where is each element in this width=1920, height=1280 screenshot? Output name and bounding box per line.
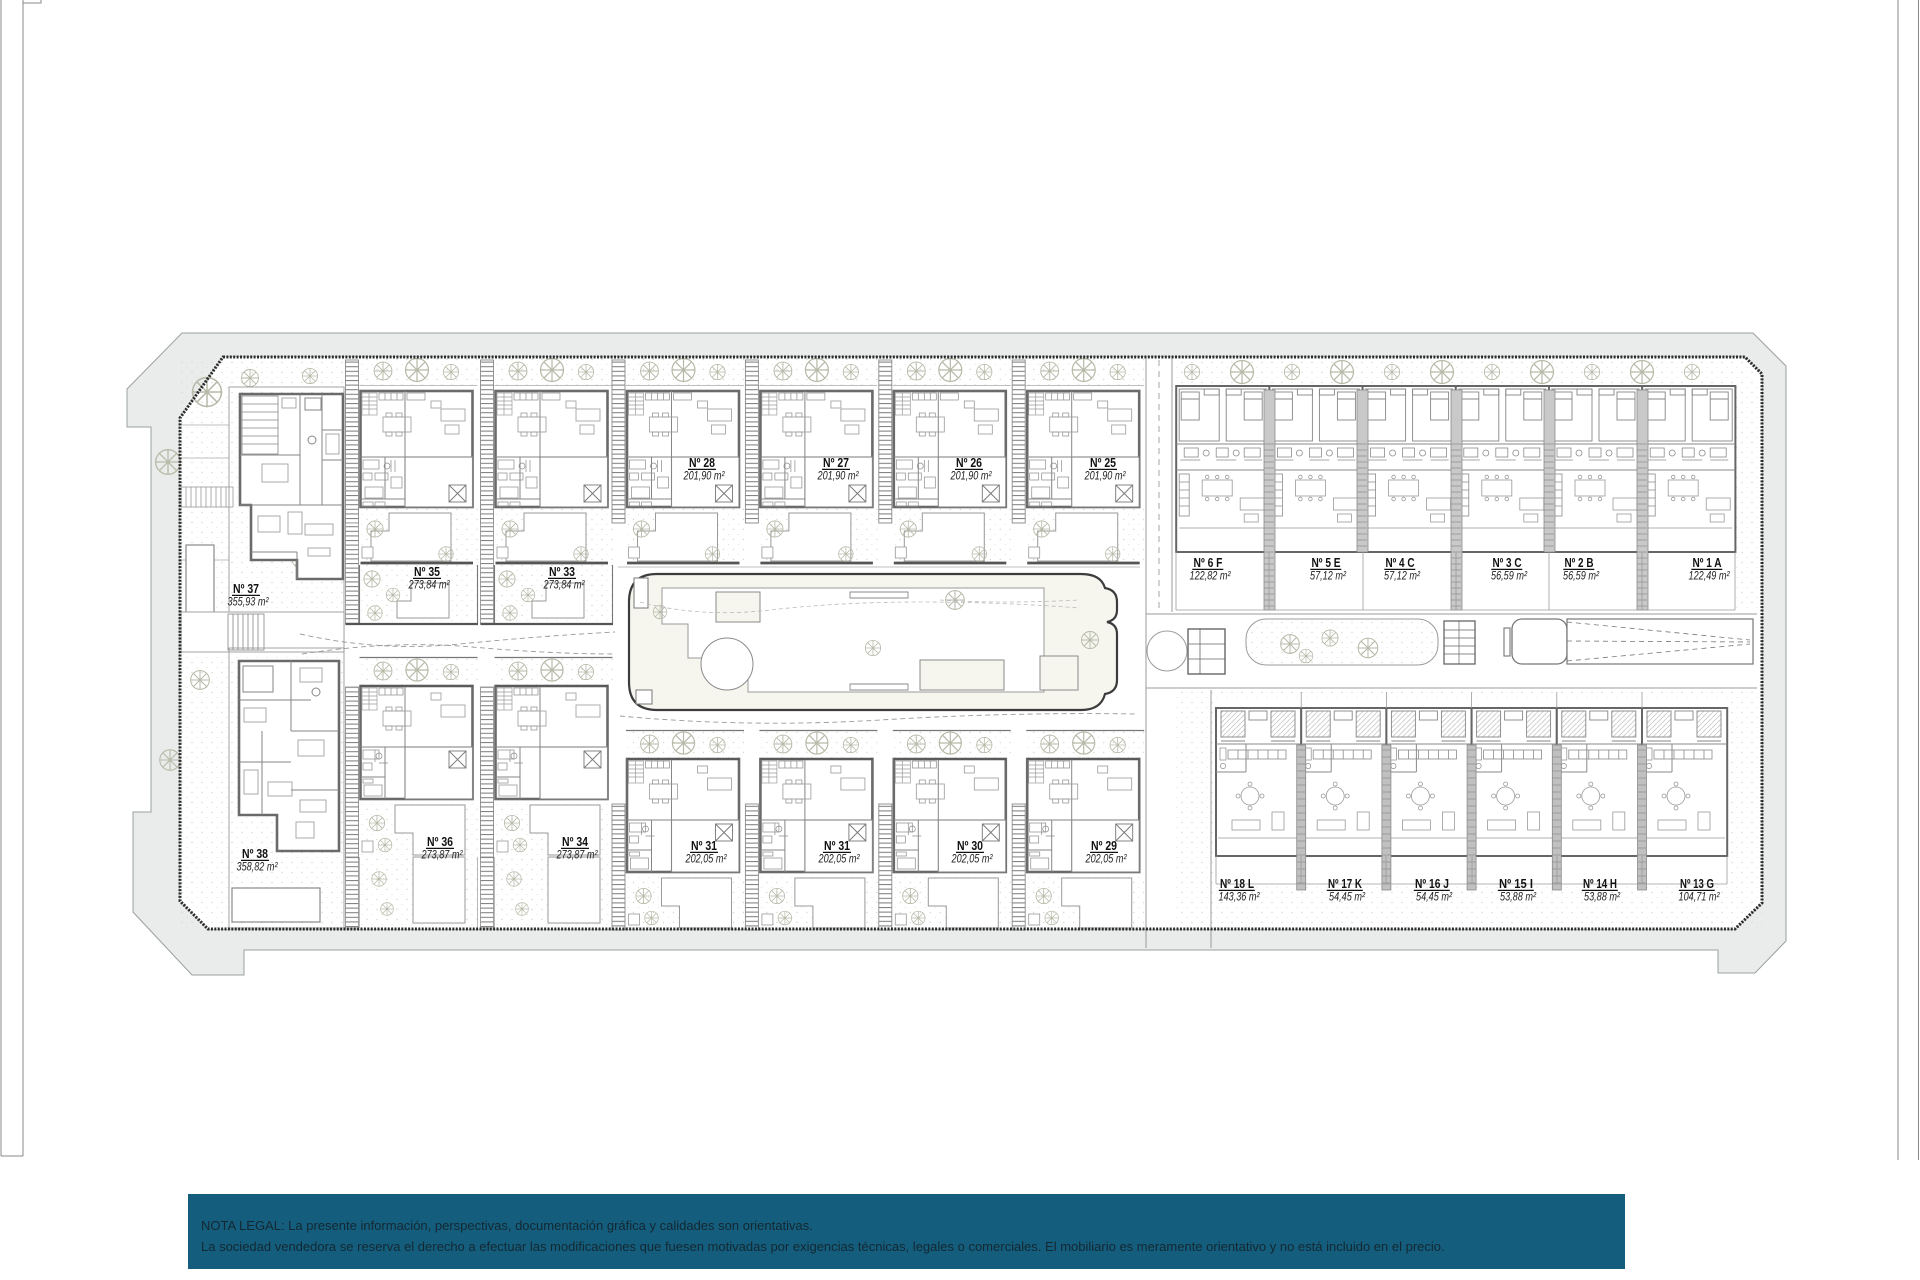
svg-text:54,45 m²: 54,45 m²	[1329, 890, 1366, 904]
svg-text:57,12 m²: 57,12 m²	[1310, 569, 1347, 583]
svg-text:273,87 m²: 273,87 m²	[421, 848, 463, 862]
svg-text:57,12 m²: 57,12 m²	[1384, 569, 1421, 583]
svg-text:201,90 m²: 201,90 m²	[1084, 469, 1126, 483]
svg-text:143,36 m²: 143,36 m²	[1219, 890, 1261, 904]
svg-text:54,45 m²: 54,45 m²	[1416, 890, 1453, 904]
svg-text:202,05 m²: 202,05 m²	[685, 852, 727, 866]
svg-text:202,05 m²: 202,05 m²	[1085, 852, 1127, 866]
svg-text:122,82 m²: 122,82 m²	[1190, 569, 1232, 583]
svg-text:104,71 m²: 104,71 m²	[1679, 890, 1721, 904]
svg-text:273,84 m²: 273,84 m²	[543, 578, 585, 592]
svg-text:La sociedad vendedora se reser: La sociedad vendedora se reserva el dere…	[201, 1239, 1445, 1254]
svg-text:273,84 m²: 273,84 m²	[408, 578, 450, 592]
svg-text:201,90 m²: 201,90 m²	[817, 469, 859, 483]
svg-text:202,05 m²: 202,05 m²	[818, 852, 860, 866]
svg-text:201,90 m²: 201,90 m²	[950, 469, 992, 483]
svg-text:122,49 m²: 122,49 m²	[1689, 569, 1731, 583]
svg-text:56,59 m²: 56,59 m²	[1491, 569, 1528, 583]
svg-text:273,87 m²: 273,87 m²	[556, 848, 598, 862]
svg-text:202,05 m²: 202,05 m²	[951, 852, 993, 866]
svg-text:53,88 m²: 53,88 m²	[1500, 890, 1537, 904]
svg-text:355,93 m²: 355,93 m²	[228, 595, 270, 609]
svg-text:53,88 m²: 53,88 m²	[1584, 890, 1621, 904]
svg-text:201,90 m²: 201,90 m²	[683, 469, 725, 483]
svg-text:56,59 m²: 56,59 m²	[1563, 569, 1600, 583]
svg-text:NOTA LEGAL: La presente inform: NOTA LEGAL: La presente información, per…	[201, 1218, 813, 1233]
svg-text:358,82 m²: 358,82 m²	[237, 860, 279, 874]
